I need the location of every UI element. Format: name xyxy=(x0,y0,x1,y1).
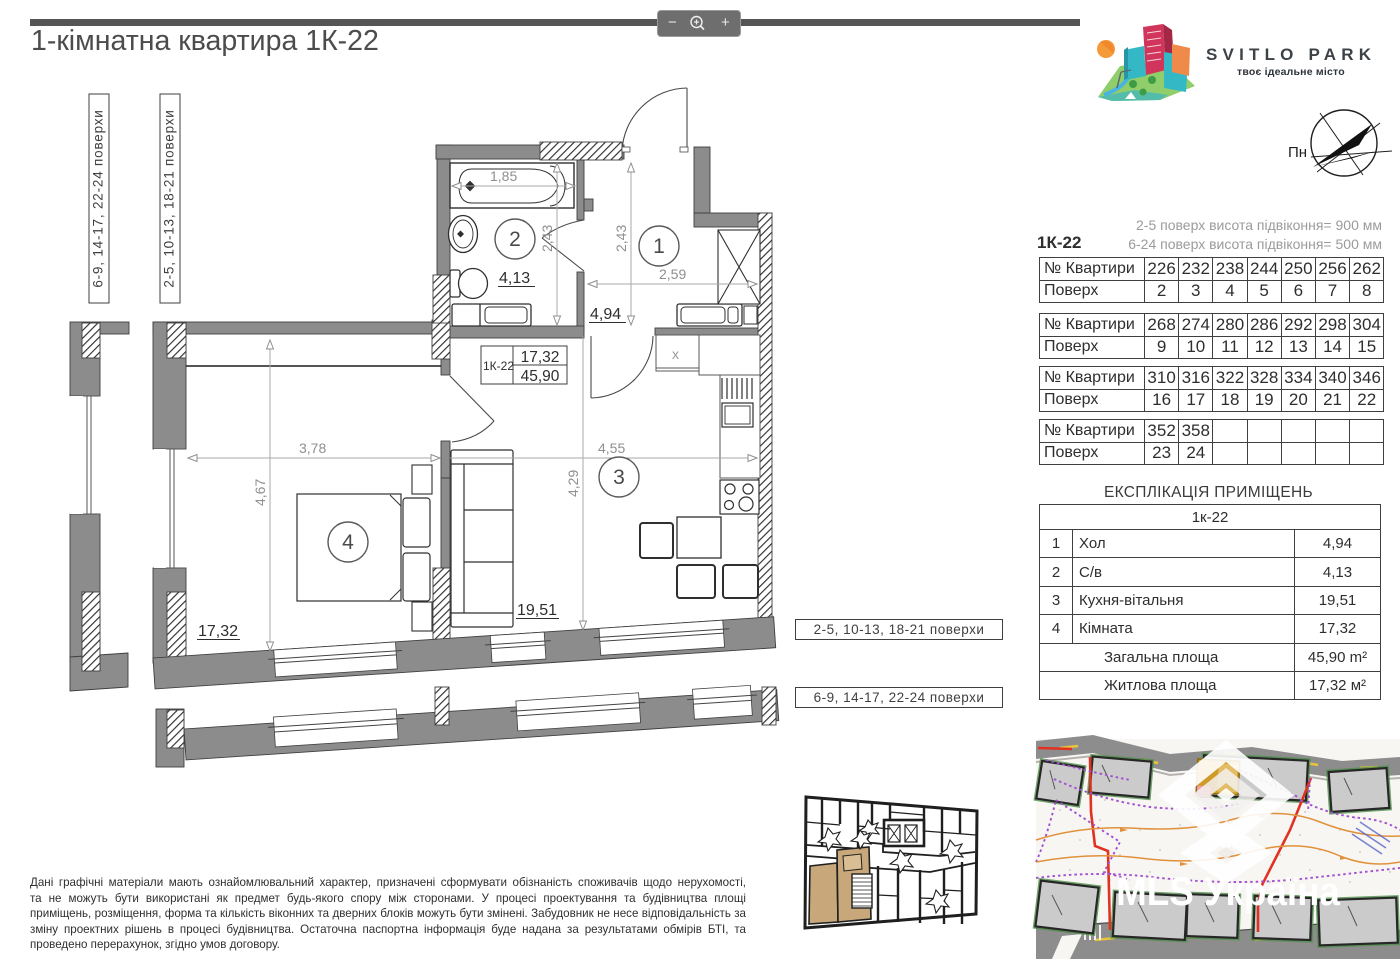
svg-text:3: 3 xyxy=(613,466,625,489)
svg-text:3,78: 3,78 xyxy=(299,440,326,456)
svg-text:2,43: 2,43 xyxy=(613,225,629,252)
svg-text:2: 2 xyxy=(509,228,521,251)
svg-text:4,29: 4,29 xyxy=(565,470,581,497)
svg-text:17,32: 17,32 xyxy=(198,623,238,640)
svg-text:4,55: 4,55 xyxy=(598,440,625,456)
svg-text:1,85: 1,85 xyxy=(490,168,517,184)
svg-text:1: 1 xyxy=(653,235,665,258)
svg-text:x: x xyxy=(672,346,679,362)
svg-text:19,51: 19,51 xyxy=(517,602,557,619)
svg-text:4: 4 xyxy=(342,531,354,554)
svg-text:17,32: 17,32 xyxy=(521,349,560,366)
svg-text:4,67: 4,67 xyxy=(252,479,268,506)
svg-text:4,13: 4,13 xyxy=(499,270,530,287)
svg-text:1К-22: 1К-22 xyxy=(483,359,514,373)
svg-text:Пн: Пн xyxy=(1288,144,1307,161)
svg-text:45,90: 45,90 xyxy=(521,368,560,385)
svg-text:2,59: 2,59 xyxy=(659,266,686,282)
svg-text:2,43: 2,43 xyxy=(539,225,555,252)
svg-text:4,94: 4,94 xyxy=(590,306,621,323)
